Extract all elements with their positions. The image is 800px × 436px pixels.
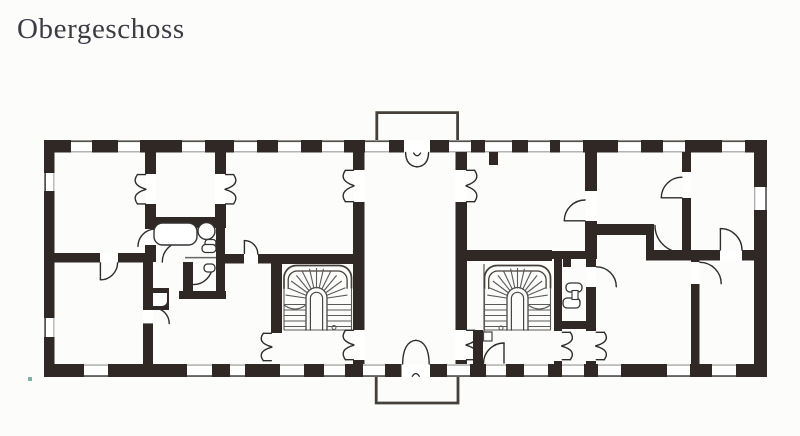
svg-text:Obergeschoss: Obergeschoss [17,13,185,45]
